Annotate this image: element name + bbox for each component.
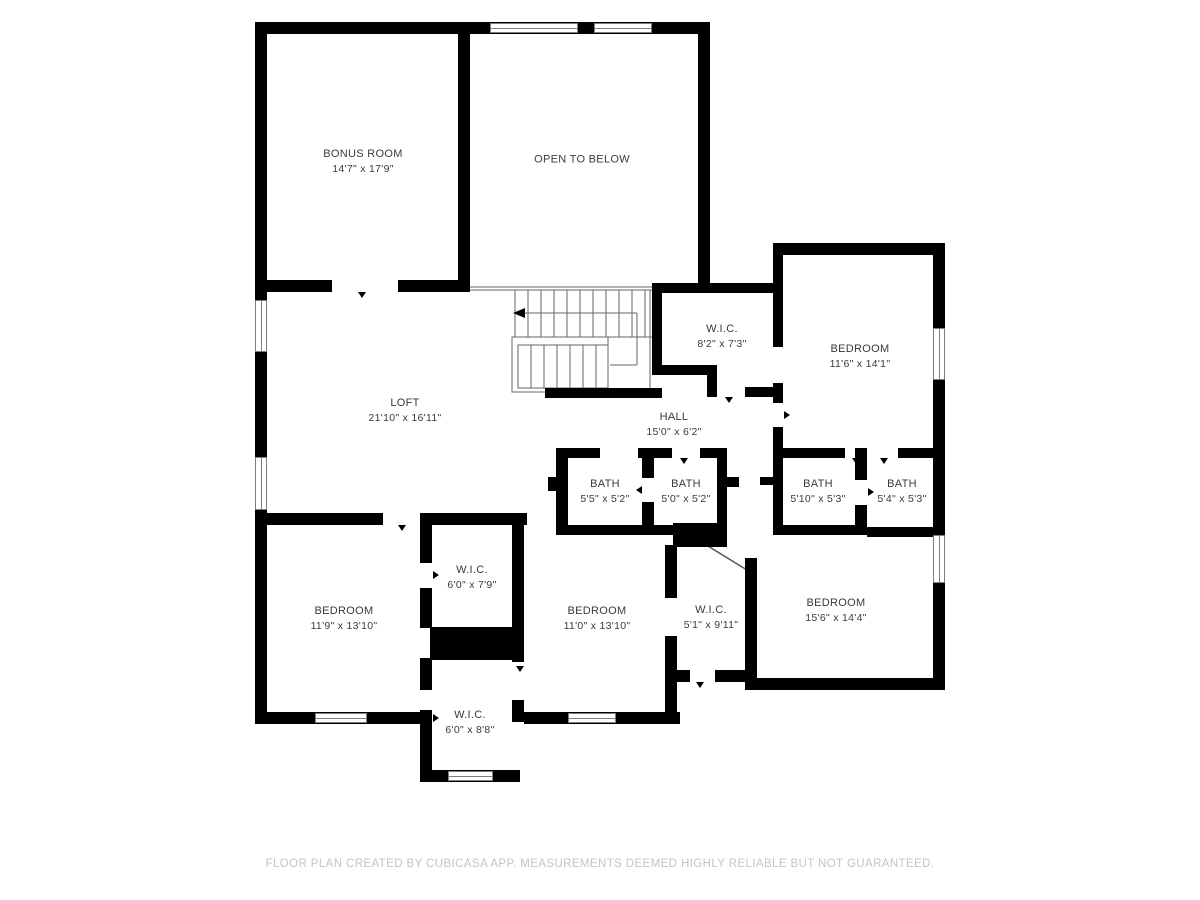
room-label-wic-upper: W.I.C. 8'2" x 7'3" [697, 322, 746, 352]
wall [255, 280, 332, 292]
room-dims: 5'0" x 5'2" [661, 492, 710, 507]
wall [673, 523, 727, 547]
room-dims: 11'6" x 14'1" [830, 357, 891, 372]
room-label-wic-s: W.I.C. 5'1" x 9'11" [684, 603, 739, 633]
wall [420, 658, 432, 690]
wall [665, 670, 690, 682]
window [490, 23, 578, 33]
door-marker [680, 458, 688, 464]
wall [698, 22, 710, 290]
room-label-hall: HALL 15'0" x 6'2" [646, 410, 701, 440]
door-marker [784, 411, 790, 419]
wall [652, 448, 672, 458]
door-marker [852, 458, 860, 464]
room-dims: 5'1" x 9'11" [684, 618, 739, 633]
wall [420, 588, 432, 628]
room-dims: 11'9" x 13'10" [311, 619, 378, 634]
room-name: BEDROOM [564, 604, 631, 619]
room-dims: 14'7" x 17'9" [323, 162, 402, 177]
door-marker [433, 714, 439, 722]
room-name: OPEN TO BELOW [534, 152, 630, 167]
room-dims: 15'0" x 6'2" [646, 425, 701, 440]
room-label-loft: LOFT 21'10" x 16'11" [369, 396, 442, 426]
attribution-disclaimer: FLOOR PLAN CREATED BY CUBICASA APP. MEAS… [0, 858, 1200, 870]
wall [745, 558, 757, 690]
wall [783, 448, 845, 458]
room-dims: 5'5" x 5'2" [580, 492, 629, 507]
room-label-bedroom-ne: BEDROOM 11'6" x 14'1" [830, 342, 891, 372]
wall [556, 448, 568, 535]
room-dims: 5'4" x 5'3" [877, 492, 926, 507]
wall [898, 448, 945, 458]
wall [652, 283, 662, 367]
wall [665, 545, 677, 598]
wall [420, 513, 432, 563]
wall [933, 243, 945, 690]
room-dims: 15'6" x 14'4" [805, 611, 867, 626]
door-marker [725, 397, 733, 403]
wall [255, 513, 383, 525]
wall [717, 448, 727, 535]
room-dims: 5'10" x 5'3" [790, 492, 845, 507]
room-label-bath-b: BATH 5'0" x 5'2" [661, 477, 710, 507]
room-name: W.I.C. [697, 322, 746, 337]
room-label-open-to-below: OPEN TO BELOW [534, 152, 630, 167]
window [594, 23, 652, 33]
window [568, 713, 616, 723]
wall [707, 365, 717, 397]
room-label-bedroom-se: BEDROOM 15'6" x 14'4" [805, 596, 867, 626]
wall [727, 477, 739, 487]
room-label-bath-d: BATH 5'4" x 5'3" [877, 477, 926, 507]
staircase [455, 283, 665, 395]
room-dims: 11'0" x 13'10" [564, 619, 631, 634]
room-name: BEDROOM [805, 596, 867, 611]
room-name: BATH [580, 477, 629, 492]
window [933, 535, 945, 583]
room-dims: 6'0" x 7'9" [447, 578, 496, 593]
wall [745, 387, 783, 397]
wall [773, 427, 783, 535]
floor-plan: BONUS ROOM 14'7" x 17'9" OPEN TO BELOW W… [0, 0, 1200, 900]
wall [773, 255, 783, 347]
window [255, 457, 267, 510]
room-label-bedroom-sw: BEDROOM 11'9" x 13'10" [311, 604, 378, 634]
room-name: W.I.C. [684, 603, 739, 618]
room-dims: 8'2" x 7'3" [697, 337, 746, 352]
room-name: HALL [646, 410, 701, 425]
wall [773, 525, 867, 535]
room-dims: 6'0" x 8'8" [445, 723, 494, 738]
room-name: BATH [877, 477, 926, 492]
door-marker [358, 292, 366, 298]
room-label-bonus-room: BONUS ROOM 14'7" x 17'9" [323, 147, 402, 177]
wall [548, 477, 556, 491]
window [315, 713, 367, 723]
room-label-bedroom-s: BEDROOM 11'0" x 13'10" [564, 604, 631, 634]
wall [458, 22, 470, 290]
wall [745, 678, 945, 690]
wall [512, 513, 524, 662]
room-name: W.I.C. [445, 708, 494, 723]
room-name: BONUS ROOM [323, 147, 402, 162]
wall [773, 243, 945, 255]
room-dims: 21'10" x 16'11" [369, 411, 442, 426]
wall [760, 477, 773, 485]
door-marker [433, 571, 439, 579]
wall [545, 388, 662, 398]
wall [652, 283, 783, 293]
room-label-bath-c: BATH 5'10" x 5'3" [790, 477, 845, 507]
wall [430, 627, 515, 660]
wall [398, 280, 470, 292]
room-label-wic-mid: W.I.C. 6'0" x 7'9" [447, 563, 496, 593]
door-marker [398, 525, 406, 531]
wall [512, 700, 524, 722]
door-marker [516, 666, 524, 672]
room-name: BEDROOM [830, 342, 891, 357]
room-label-wic-low: W.I.C. 6'0" x 8'8" [445, 708, 494, 738]
window [255, 300, 267, 352]
room-name: BATH [790, 477, 845, 492]
room-name: BEDROOM [311, 604, 378, 619]
room-name: BATH [661, 477, 710, 492]
door-marker [880, 458, 888, 464]
wall [255, 22, 267, 722]
window [933, 328, 945, 380]
door-marker [696, 682, 704, 688]
door-marker [749, 566, 755, 574]
door-marker [868, 488, 874, 496]
wall [855, 448, 867, 480]
room-label-bath-a: BATH 5'5" x 5'2" [580, 477, 629, 507]
wall [255, 22, 470, 34]
window [448, 771, 493, 781]
room-name: W.I.C. [447, 563, 496, 578]
room-name: LOFT [369, 396, 442, 411]
wall [420, 513, 527, 525]
door-marker [636, 486, 642, 494]
